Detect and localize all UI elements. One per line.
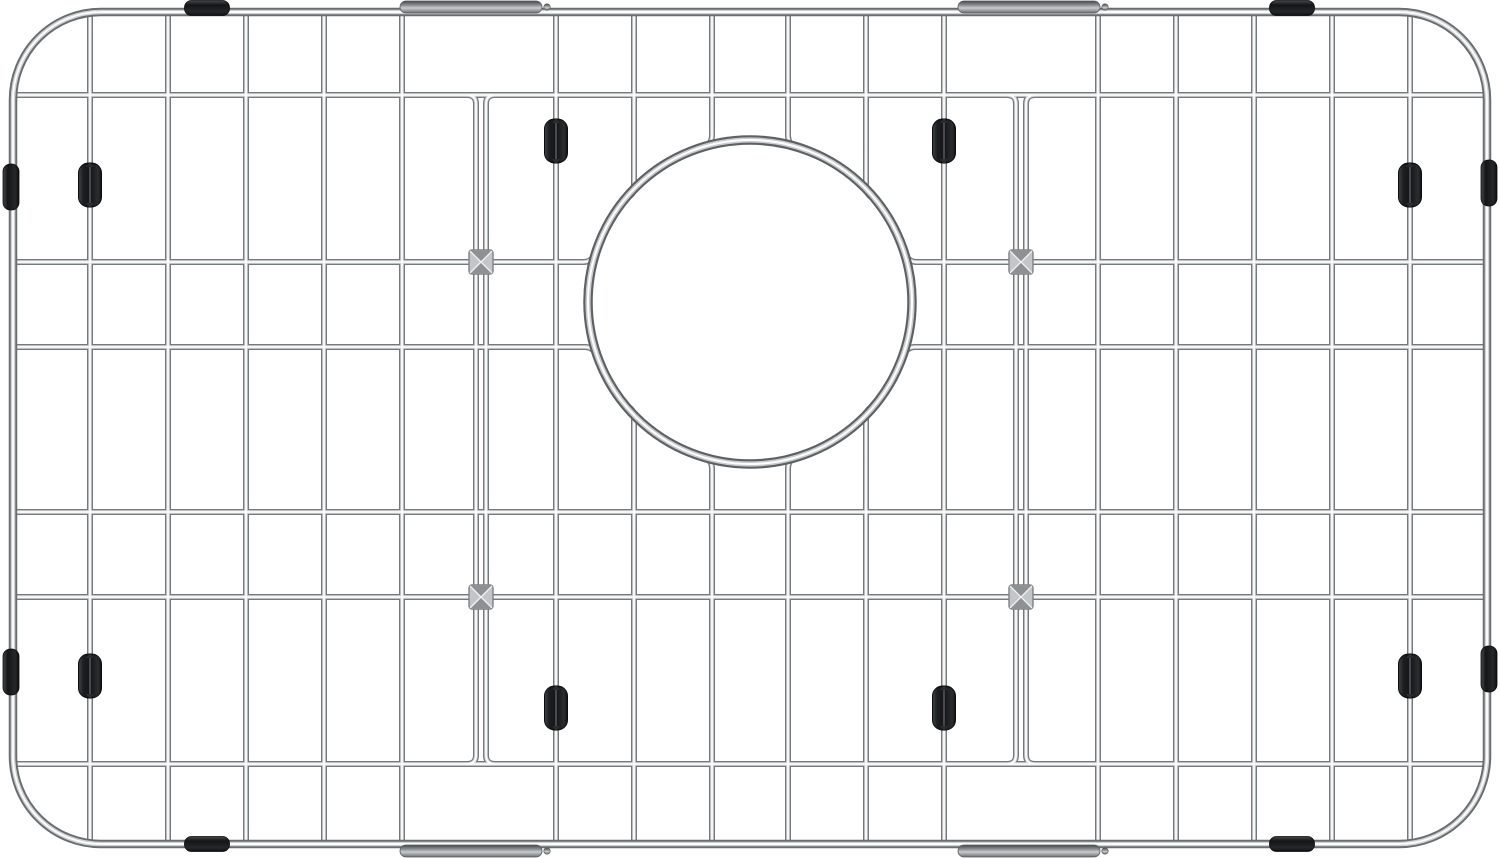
sink-grid-illustration — [0, 0, 1500, 858]
backdrop — [0, 0, 1500, 858]
rubber-foot — [1399, 653, 1422, 699]
cross-clip — [469, 585, 493, 609]
product-photo — [0, 0, 1500, 858]
rubber-bumper — [3, 649, 19, 695]
rubber-bumper — [1270, 837, 1315, 852]
cross-clip — [1009, 585, 1033, 609]
rubber-bumper — [1481, 646, 1497, 692]
metal-sleeve — [958, 1, 1108, 13]
rubber-bumper — [1481, 160, 1497, 206]
cross-clip — [469, 250, 493, 274]
rubber-bumper — [185, 837, 230, 852]
rubber-foot — [545, 685, 568, 731]
rubber-foot — [79, 162, 102, 208]
rubber-foot — [1399, 162, 1422, 208]
rubber-foot — [933, 118, 956, 164]
metal-sleeve — [400, 1, 550, 13]
rubber-bumper — [3, 164, 19, 210]
cross-clip — [1009, 250, 1033, 274]
rubber-foot — [79, 653, 102, 699]
metal-sleeve — [958, 845, 1108, 857]
metal-sleeve — [400, 845, 550, 857]
rubber-foot — [545, 118, 568, 164]
rubber-bumper — [185, 1, 230, 16]
rubber-foot — [933, 685, 956, 731]
rubber-bumper — [1270, 1, 1315, 16]
